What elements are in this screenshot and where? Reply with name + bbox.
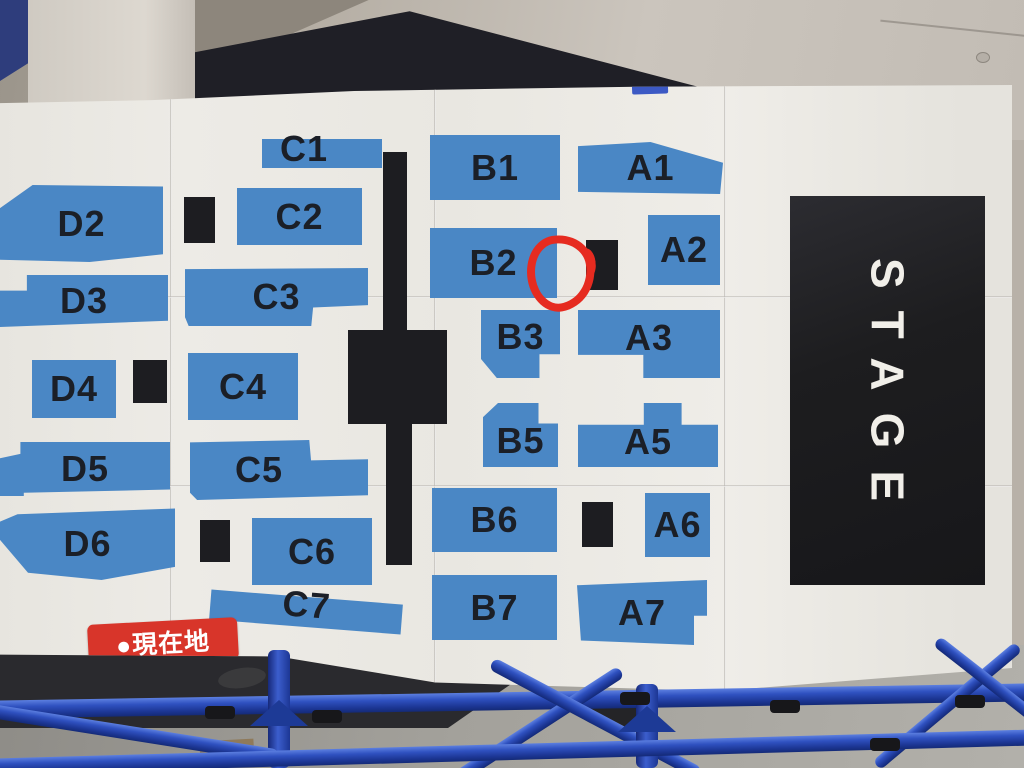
section-d2-label: D2 <box>57 206 105 242</box>
section-a7-label: A7 <box>618 595 666 631</box>
section-b7: B7 <box>432 575 557 640</box>
center-block <box>348 330 447 424</box>
section-b1: B1 <box>430 135 560 200</box>
section-b2-label: B2 <box>469 245 517 281</box>
section-b3-label: B3 <box>496 319 544 355</box>
section-d6-label: D6 <box>63 526 111 562</box>
section-c4-label: C4 <box>219 369 267 405</box>
section-d6: D6 <box>0 507 175 580</box>
section-a1-label: A1 <box>626 150 674 186</box>
section-b6-label: B6 <box>470 502 518 538</box>
section-c3-label: C3 <box>252 279 300 315</box>
section-d4: D4 <box>32 360 116 418</box>
section-a5-label: A5 <box>624 424 672 460</box>
section-c4: C4 <box>188 353 298 420</box>
divider-block <box>582 502 613 547</box>
pipe-clamp <box>312 710 342 723</box>
stage-block: STAGE <box>790 196 985 585</box>
section-b5-label: B5 <box>496 423 544 459</box>
divider-block <box>200 520 230 562</box>
section-b1-label: B1 <box>471 150 519 186</box>
paper-seam <box>724 85 726 691</box>
section-d3: D3 <box>0 275 168 327</box>
pipe-clamp <box>205 706 235 719</box>
ceiling-fixture <box>976 52 990 63</box>
section-b6: B6 <box>432 488 557 552</box>
section-b7-label: B7 <box>470 590 518 626</box>
section-c1: C1 <box>262 139 382 168</box>
section-a3-label: A3 <box>625 320 673 356</box>
pipe-clamp <box>955 695 985 708</box>
section-d4-label: D4 <box>50 371 98 407</box>
section-a2-label: A2 <box>660 232 708 268</box>
stage-label: STAGE <box>865 258 911 523</box>
section-a6-label: A6 <box>653 507 701 543</box>
section-c2-label: C2 <box>275 199 323 235</box>
section-c7-label: C7 <box>281 585 332 625</box>
section-d5: D5 <box>0 442 170 496</box>
section-a6: A6 <box>645 493 710 557</box>
section-c3: C3 <box>185 268 368 326</box>
section-a7: A7 <box>577 580 707 645</box>
venue-map-sign: D2 D3 D4 D5 D6 C1 C2 C3 C4 C5 C6 C7 <box>0 85 1012 691</box>
section-d5-label: D5 <box>61 451 109 487</box>
pipe-clamp <box>620 692 650 705</box>
section-c1-label: C1 <box>280 131 328 167</box>
section-c6: C6 <box>252 518 372 585</box>
section-c7: C7 <box>209 590 403 635</box>
divider-block <box>184 197 215 243</box>
section-c5: C5 <box>190 440 368 500</box>
section-c6-label: C6 <box>288 534 336 570</box>
divider-block <box>133 360 167 403</box>
section-a1: A1 <box>578 142 723 194</box>
section-c5-label: C5 <box>235 452 283 488</box>
pipe-clamp <box>870 738 900 751</box>
pipe-clamp <box>770 700 800 713</box>
section-d2: D2 <box>0 185 163 262</box>
section-b3: B3 <box>481 310 560 378</box>
venue-photo-scene: D2 D3 D4 D5 D6 C1 C2 C3 C4 C5 C6 C7 <box>0 0 1024 768</box>
center-aisle-bar <box>383 152 407 330</box>
section-a3: A3 <box>578 310 720 378</box>
section-c2: C2 <box>237 188 362 245</box>
center-aisle-bar <box>386 424 412 565</box>
section-a2: A2 <box>648 215 720 285</box>
section-a5: A5 <box>578 403 718 467</box>
section-d3-label: D3 <box>60 283 108 319</box>
paper-seam <box>170 85 172 691</box>
section-b5: B5 <box>483 403 558 467</box>
